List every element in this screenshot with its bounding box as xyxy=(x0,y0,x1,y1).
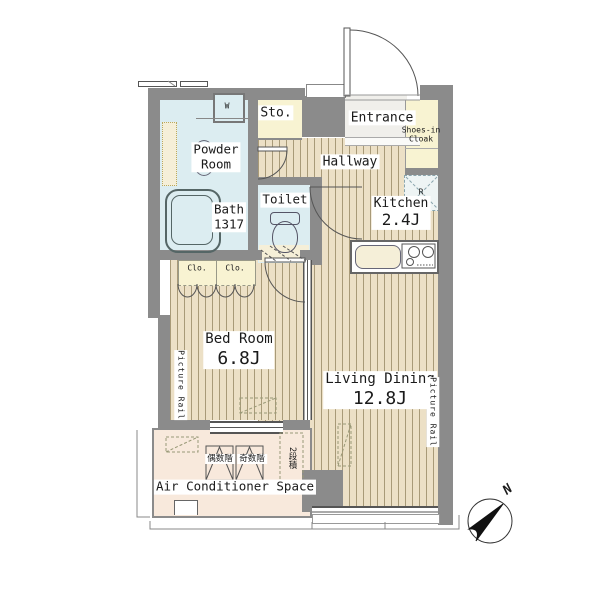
wall-bedroom-bottom-left xyxy=(158,420,210,430)
powder-pipe-space xyxy=(162,122,177,186)
hallway-label: Hallway xyxy=(321,154,380,169)
wall-cloak-bottom xyxy=(405,168,438,175)
compass-circle xyxy=(468,499,512,543)
compass-north-label: N xyxy=(499,480,518,499)
balcony-sill xyxy=(312,514,440,524)
ac-notch xyxy=(174,500,198,515)
wall-left-upper xyxy=(148,88,160,318)
shoes-in-cloak-label: Shoes-inCloak xyxy=(400,126,443,145)
wall-top-right xyxy=(420,85,453,100)
living-dining-label: Living Dining12.8J xyxy=(323,371,437,409)
toilet-label: Toilet xyxy=(260,193,309,208)
cloak-shelf-line xyxy=(405,148,438,149)
kitchen-sink xyxy=(355,245,401,269)
wall-right xyxy=(438,100,453,525)
kitchen-label: Kitchen2.4J xyxy=(372,196,431,230)
bath-label: Bath1317 xyxy=(212,202,246,232)
toilet-bowl xyxy=(272,221,298,253)
washer-label: W xyxy=(223,101,232,110)
refrigerator-label: R xyxy=(417,187,426,196)
wall-left-bedroom xyxy=(158,315,170,430)
picture-rail-right-label: Picture Rail xyxy=(426,377,439,447)
entrance-label: Entrance xyxy=(349,110,416,125)
compass-needle xyxy=(469,504,503,541)
entrance-recess xyxy=(306,84,346,98)
sliding-partition xyxy=(303,260,312,420)
ac-stacked-label: 2段積 xyxy=(285,447,299,469)
exterior-bar-1 xyxy=(138,81,177,87)
exterior-bar-2 xyxy=(180,81,208,87)
compass xyxy=(468,499,512,543)
floor-plan: Sto. Entrance Shoes-inCloak PowderRoom H… xyxy=(0,0,600,607)
storage-label: Sto. xyxy=(258,105,293,120)
closet-right-label: Clo. xyxy=(223,263,246,272)
powder-counter-line xyxy=(196,118,250,119)
ac-space-label: Air Conditioner Space xyxy=(154,480,316,495)
pillar-storage xyxy=(302,100,345,137)
wall-powder-toilet xyxy=(248,100,258,260)
closet-left-label: Clo. xyxy=(185,263,208,272)
entrance-door-arc xyxy=(350,30,418,96)
bathtub-inner xyxy=(171,195,213,245)
ac-odd-floor-label: 奇数階 xyxy=(237,454,267,464)
bedroom-label: Bed Room6.8J xyxy=(203,331,274,369)
window-bedroom-ac xyxy=(210,421,283,434)
ac-even-floor-label: 偶数階 xyxy=(205,454,235,464)
powder-room-label: PowderRoom xyxy=(191,142,240,172)
picture-rail-left-label: Picture Rail xyxy=(174,350,187,420)
wall-bedroom-bottom-right xyxy=(283,420,310,430)
exterior-left-line xyxy=(137,430,150,517)
wall-toilet-top xyxy=(258,177,310,185)
